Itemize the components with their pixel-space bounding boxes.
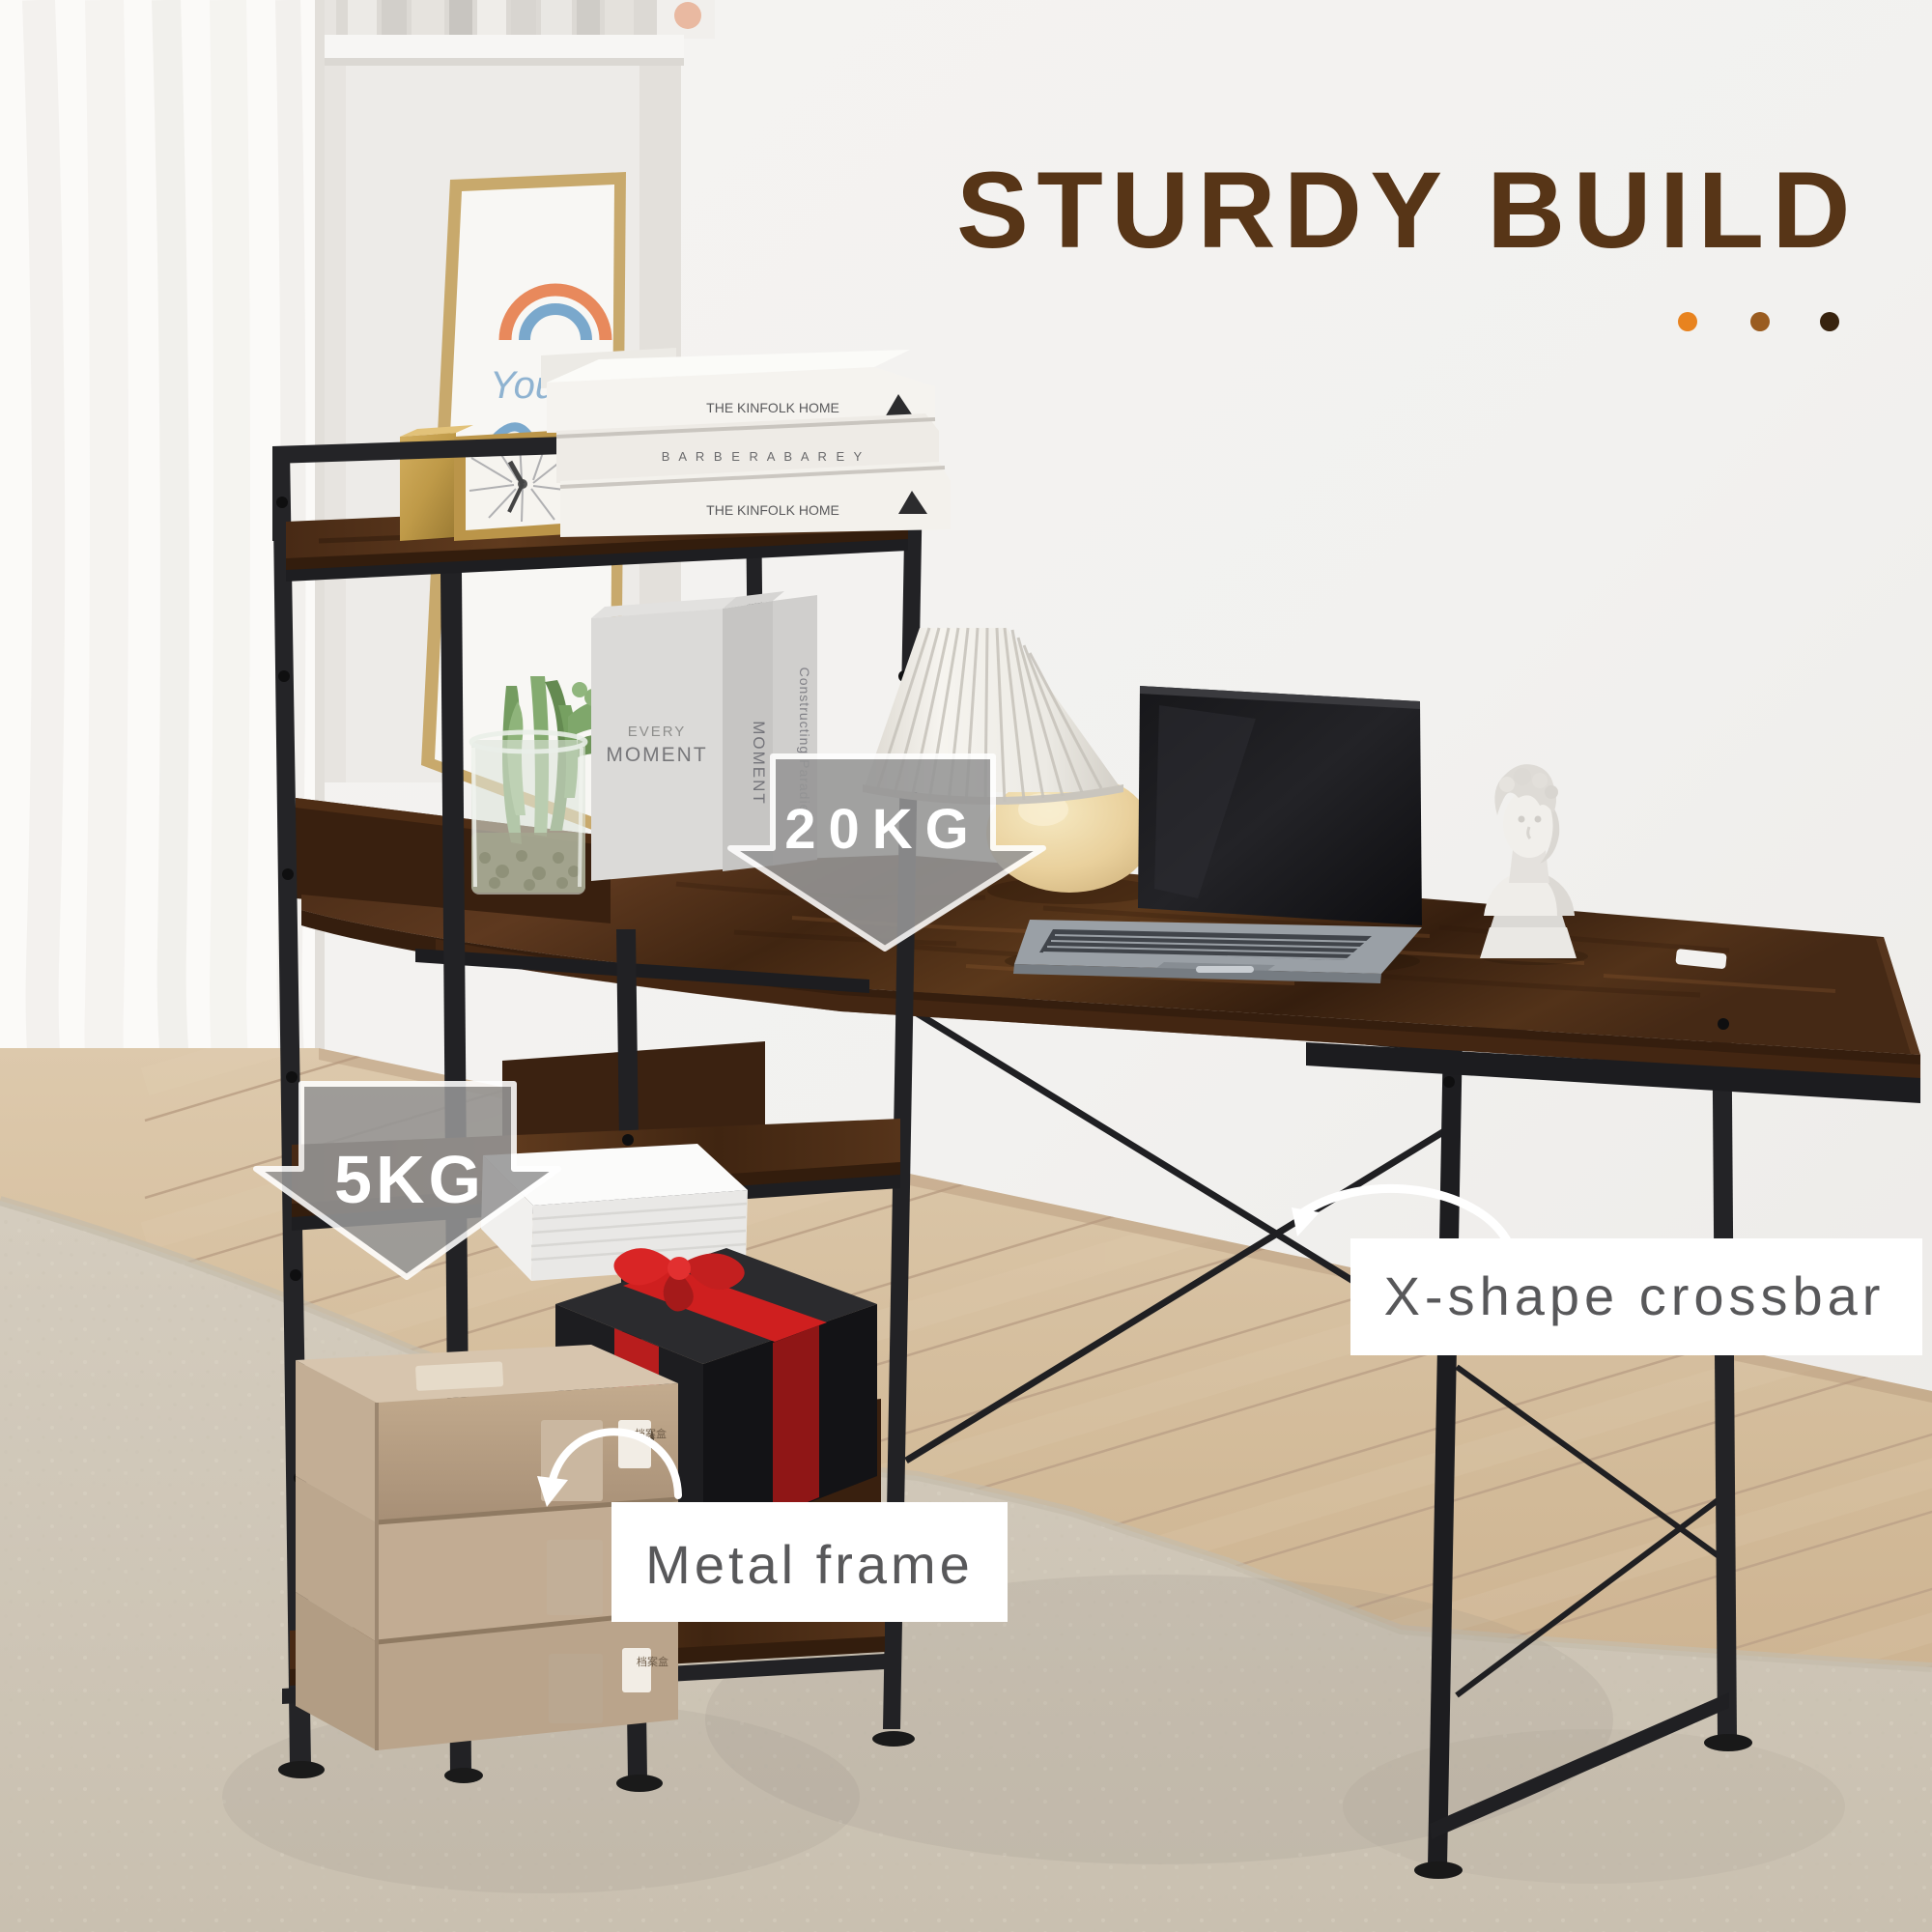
svg-text:B A R B E R A B A R E Y: B A R B E R A B A R E Y — [662, 449, 865, 464]
svg-text:X-shape crossbar: X-shape crossbar — [1384, 1265, 1886, 1326]
svg-text:EVERY: EVERY — [628, 724, 687, 740]
svg-text:STURDY BUILD: STURDY BUILD — [956, 150, 1859, 270]
svg-text:档案盒: 档案盒 — [637, 1655, 668, 1668]
svg-text:20KG: 20KG — [784, 798, 981, 861]
svg-text:5KG: 5KG — [334, 1142, 485, 1217]
svg-text:MOMENT: MOMENT — [606, 744, 707, 766]
svg-text:MOMENT: MOMENT — [750, 721, 768, 806]
svg-text:THE KINFOLK HOME: THE KINFOLK HOME — [706, 400, 839, 415]
svg-text:THE KINFOLK HOME: THE KINFOLK HOME — [706, 502, 839, 518]
svg-text:Metal frame: Metal frame — [645, 1534, 974, 1595]
